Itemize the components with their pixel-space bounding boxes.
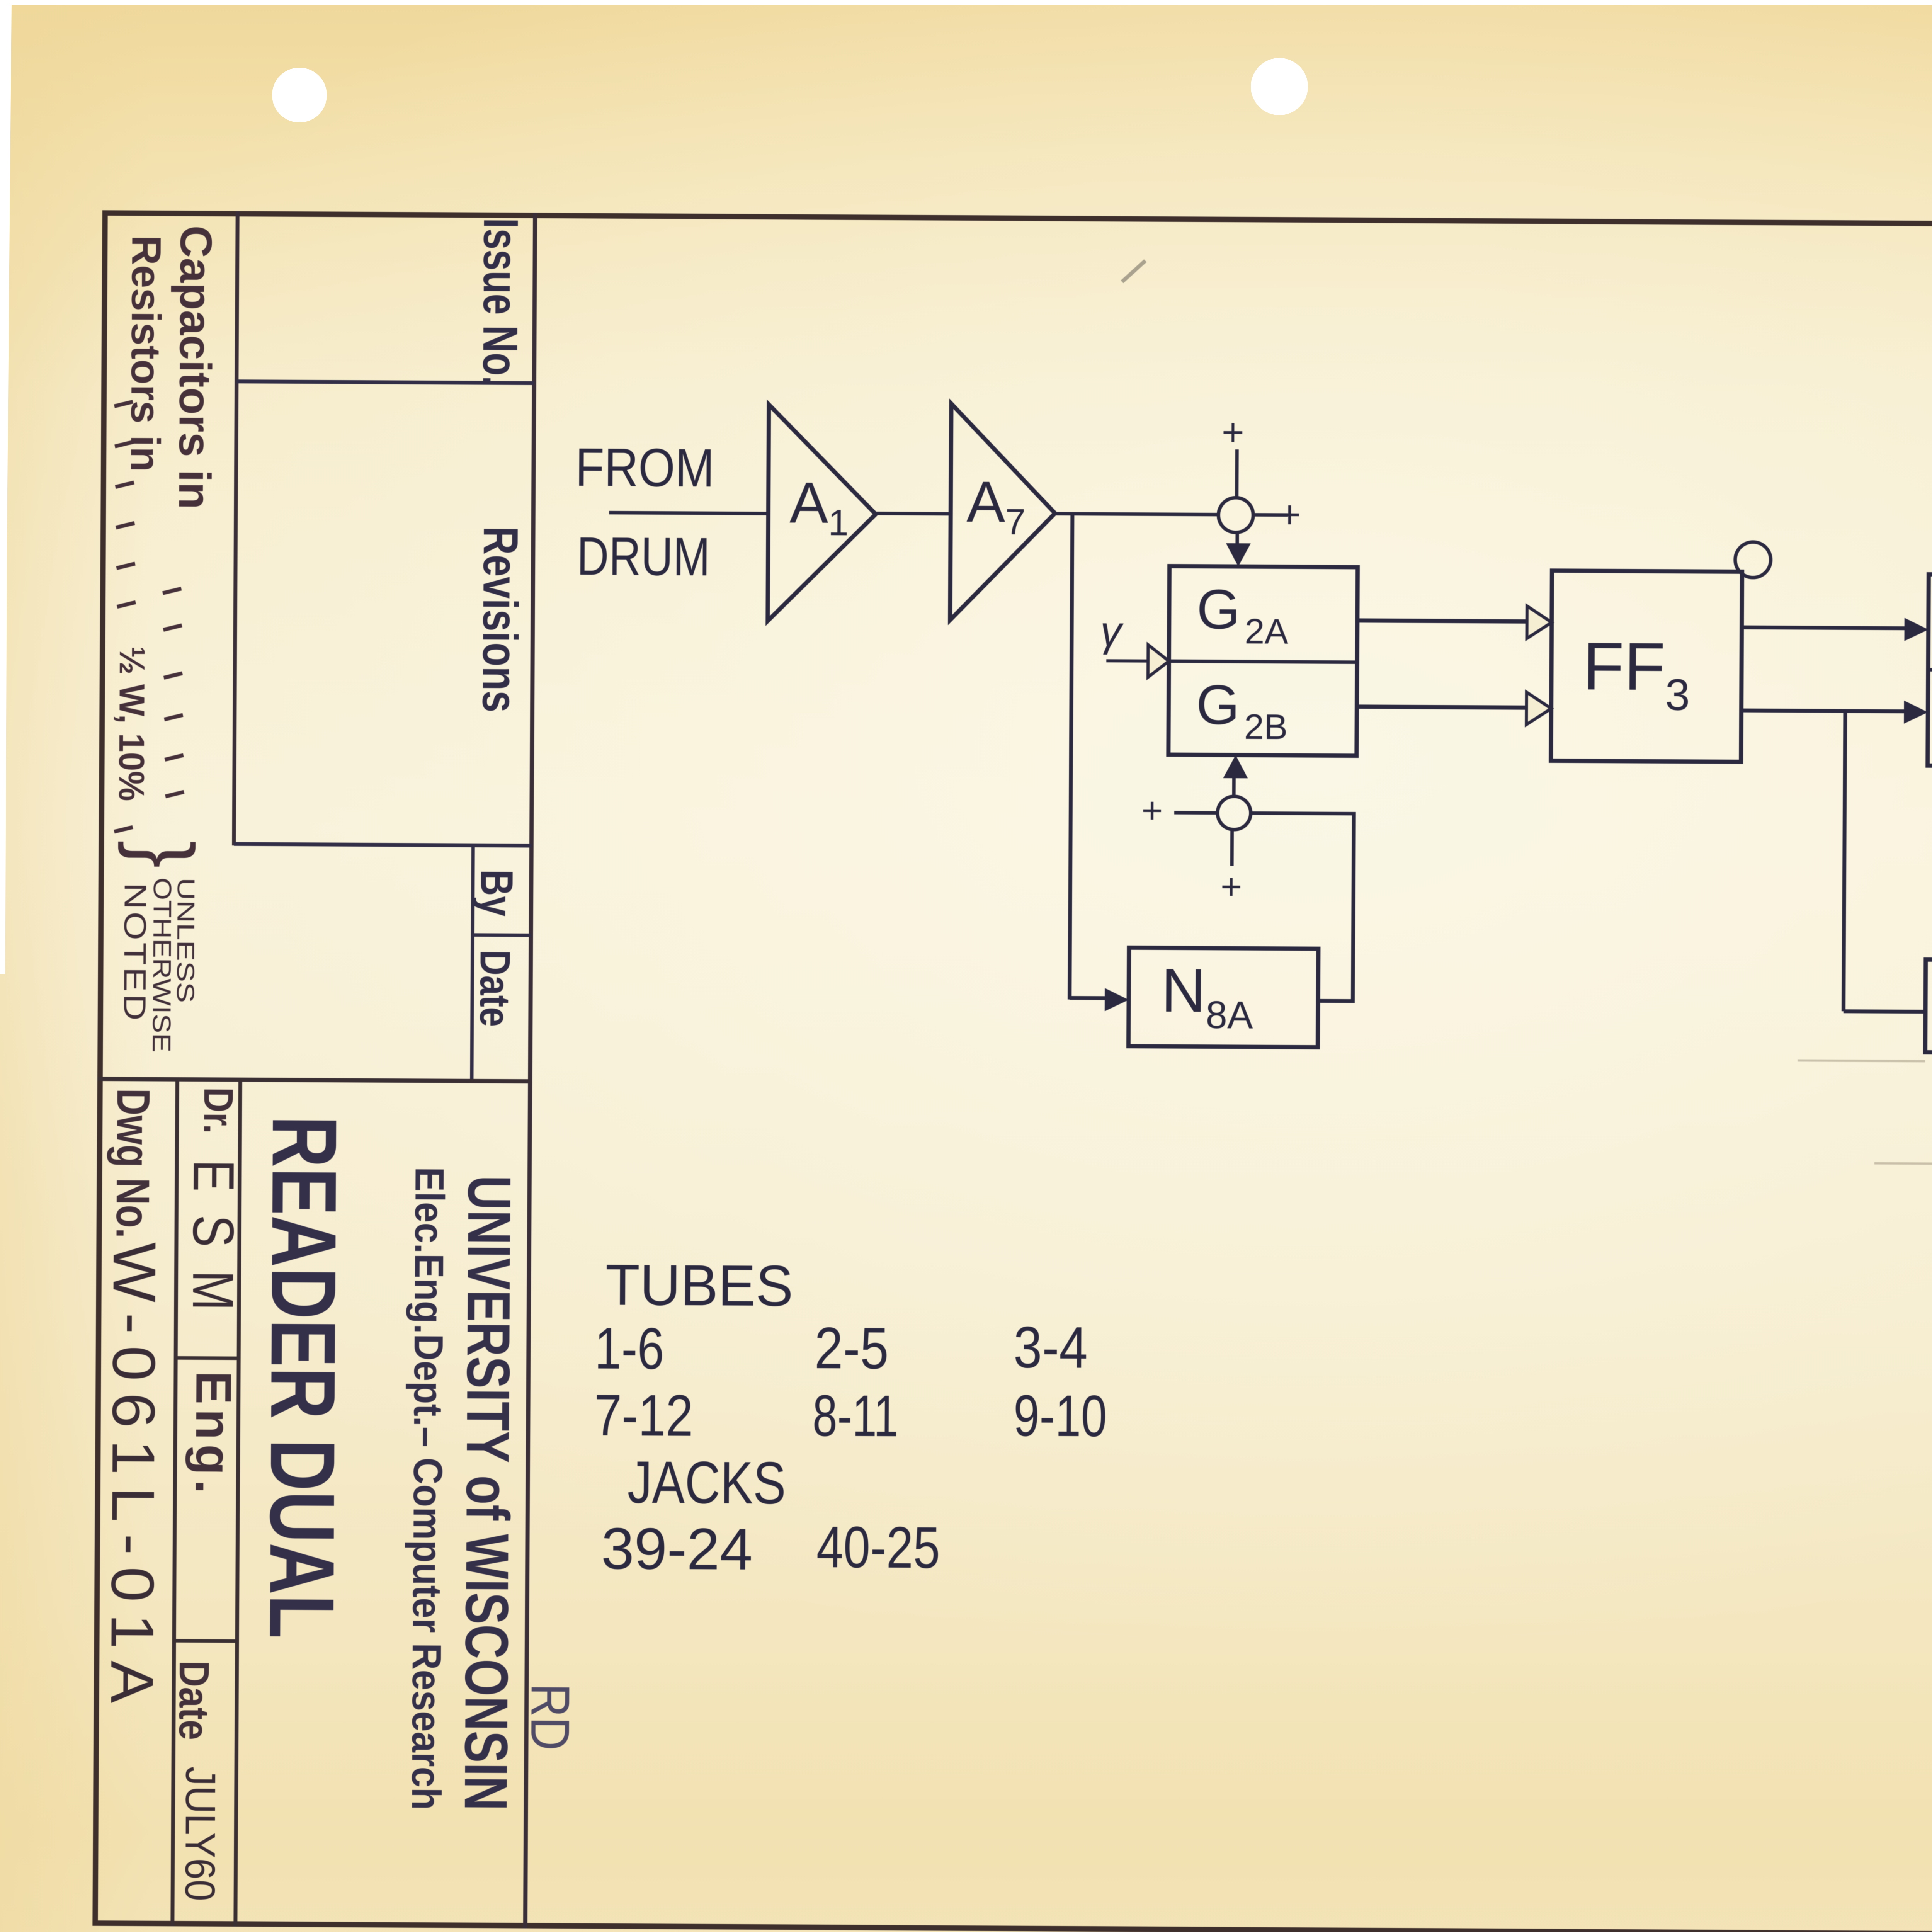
svg-text:FROM: FROM bbox=[575, 437, 715, 498]
svg-text:ESM: ESM bbox=[180, 1159, 246, 1334]
svg-text:+: + bbox=[1221, 411, 1244, 454]
svg-text:40-25: 40-25 bbox=[816, 1514, 940, 1581]
svg-text:A7: A7 bbox=[966, 469, 1026, 543]
svg-text:½ W, 10%: ½ W, 10% bbox=[111, 646, 152, 801]
svg-text:9-10: 9-10 bbox=[1013, 1383, 1107, 1449]
svg-text:G2B: G2B bbox=[1196, 673, 1288, 747]
svg-text:γ: γ bbox=[1100, 607, 1124, 655]
svg-text:READER DUAL: READER DUAL bbox=[250, 1115, 355, 1639]
svg-text:+: + bbox=[1278, 493, 1301, 536]
svg-text:Eng.: Eng. bbox=[185, 1371, 242, 1498]
svg-text:NOTED: NOTED bbox=[117, 883, 153, 1023]
svg-text:Resistors in: Resistors in bbox=[122, 235, 170, 472]
svg-text:8-11: 8-11 bbox=[812, 1383, 898, 1449]
svg-text:UNIVERSITY of WISCONSIN: UNIVERSITY of WISCONSIN bbox=[452, 1175, 523, 1811]
svg-text:1-6: 1-6 bbox=[594, 1316, 664, 1382]
svg-text:Dwg No.: Dwg No. bbox=[106, 1088, 159, 1238]
svg-text:39-24: 39-24 bbox=[601, 1516, 753, 1582]
svg-text:By: By bbox=[471, 869, 522, 917]
svg-text:N8A: N8A bbox=[1161, 956, 1253, 1037]
svg-text:3-4: 3-4 bbox=[1013, 1315, 1088, 1381]
svg-text:JULY60: JULY60 bbox=[176, 1766, 224, 1901]
svg-text:Date: Date bbox=[471, 950, 519, 1027]
svg-text:Dr.: Dr. bbox=[195, 1087, 241, 1134]
svg-text:FF3: FF3 bbox=[1582, 629, 1690, 720]
svg-text:}: } bbox=[117, 840, 211, 868]
svg-text:W-061L-01A: W-061L-01A bbox=[98, 1242, 168, 1715]
svg-text:TUBES: TUBES bbox=[605, 1252, 793, 1318]
svg-text:Revisions: Revisions bbox=[472, 526, 528, 713]
svg-text:DRUM: DRUM bbox=[577, 526, 710, 587]
svg-text:7-12: 7-12 bbox=[594, 1383, 693, 1449]
svg-text:JACKS: JACKS bbox=[627, 1449, 786, 1516]
svg-text:A1: A1 bbox=[789, 470, 849, 543]
svg-text:Elec.Eng.Dept.– Computer Resea: Elec.Eng.Dept.– Computer Research bbox=[403, 1167, 452, 1810]
svg-text:Date: Date bbox=[170, 1660, 218, 1740]
svg-text:G2A: G2A bbox=[1196, 578, 1289, 651]
svg-text:+: + bbox=[1220, 866, 1242, 907]
svg-text:RD: RD bbox=[520, 1683, 582, 1750]
svg-text:Capacitors in: Capacitors in bbox=[169, 225, 221, 510]
svg-text:Issue No.: Issue No. bbox=[472, 218, 528, 386]
svg-text:+: + bbox=[1141, 790, 1163, 831]
svg-text:2-5: 2-5 bbox=[814, 1315, 889, 1381]
